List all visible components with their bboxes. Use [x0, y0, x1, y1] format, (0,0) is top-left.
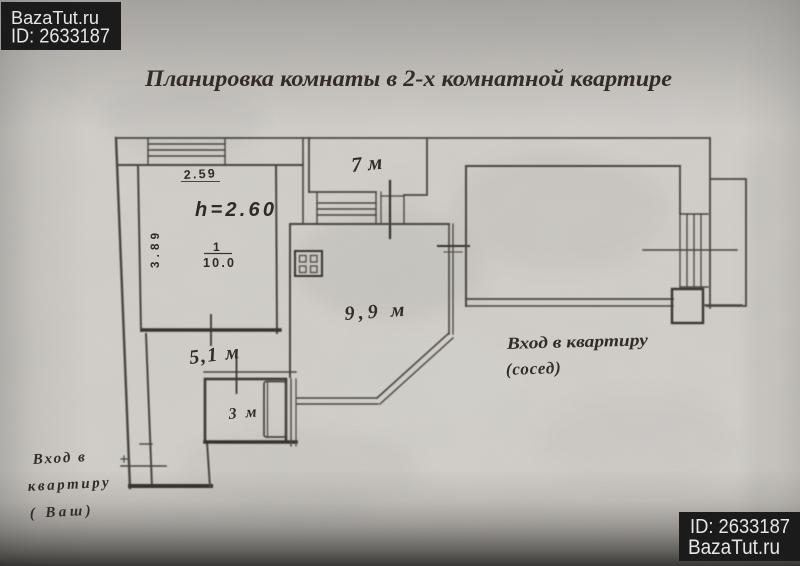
svg-text:7 м: 7 м	[350, 150, 383, 177]
svg-text:BazaTut.ru: BazaTut.ru	[688, 536, 780, 559]
svg-text:3.89: 3.89	[150, 233, 162, 268]
svg-text:10.0: 10.0	[203, 256, 234, 270]
svg-text:h=2.60: h=2.60	[195, 199, 274, 221]
svg-text:ID: 2633187: ID: 2633187	[690, 515, 790, 538]
svg-text:3 м: 3 м	[227, 404, 257, 423]
svg-text:Планировка комнаты в 2-х комна: Планировка комнаты в 2-х комнатной кварт…	[144, 66, 672, 92]
svg-text:ID: 2633187: ID: 2633187	[11, 25, 110, 48]
svg-text:1: 1	[213, 240, 220, 254]
svg-text:2.59: 2.59	[183, 166, 215, 182]
svg-text:(сосед): (сосед)	[505, 358, 561, 379]
svg-text:( Ваш): ( Ваш)	[29, 503, 91, 522]
svg-text:9,9 м: 9,9 м	[344, 299, 406, 325]
svg-text:Вход в квартиру: Вход в квартиру	[505, 330, 648, 353]
